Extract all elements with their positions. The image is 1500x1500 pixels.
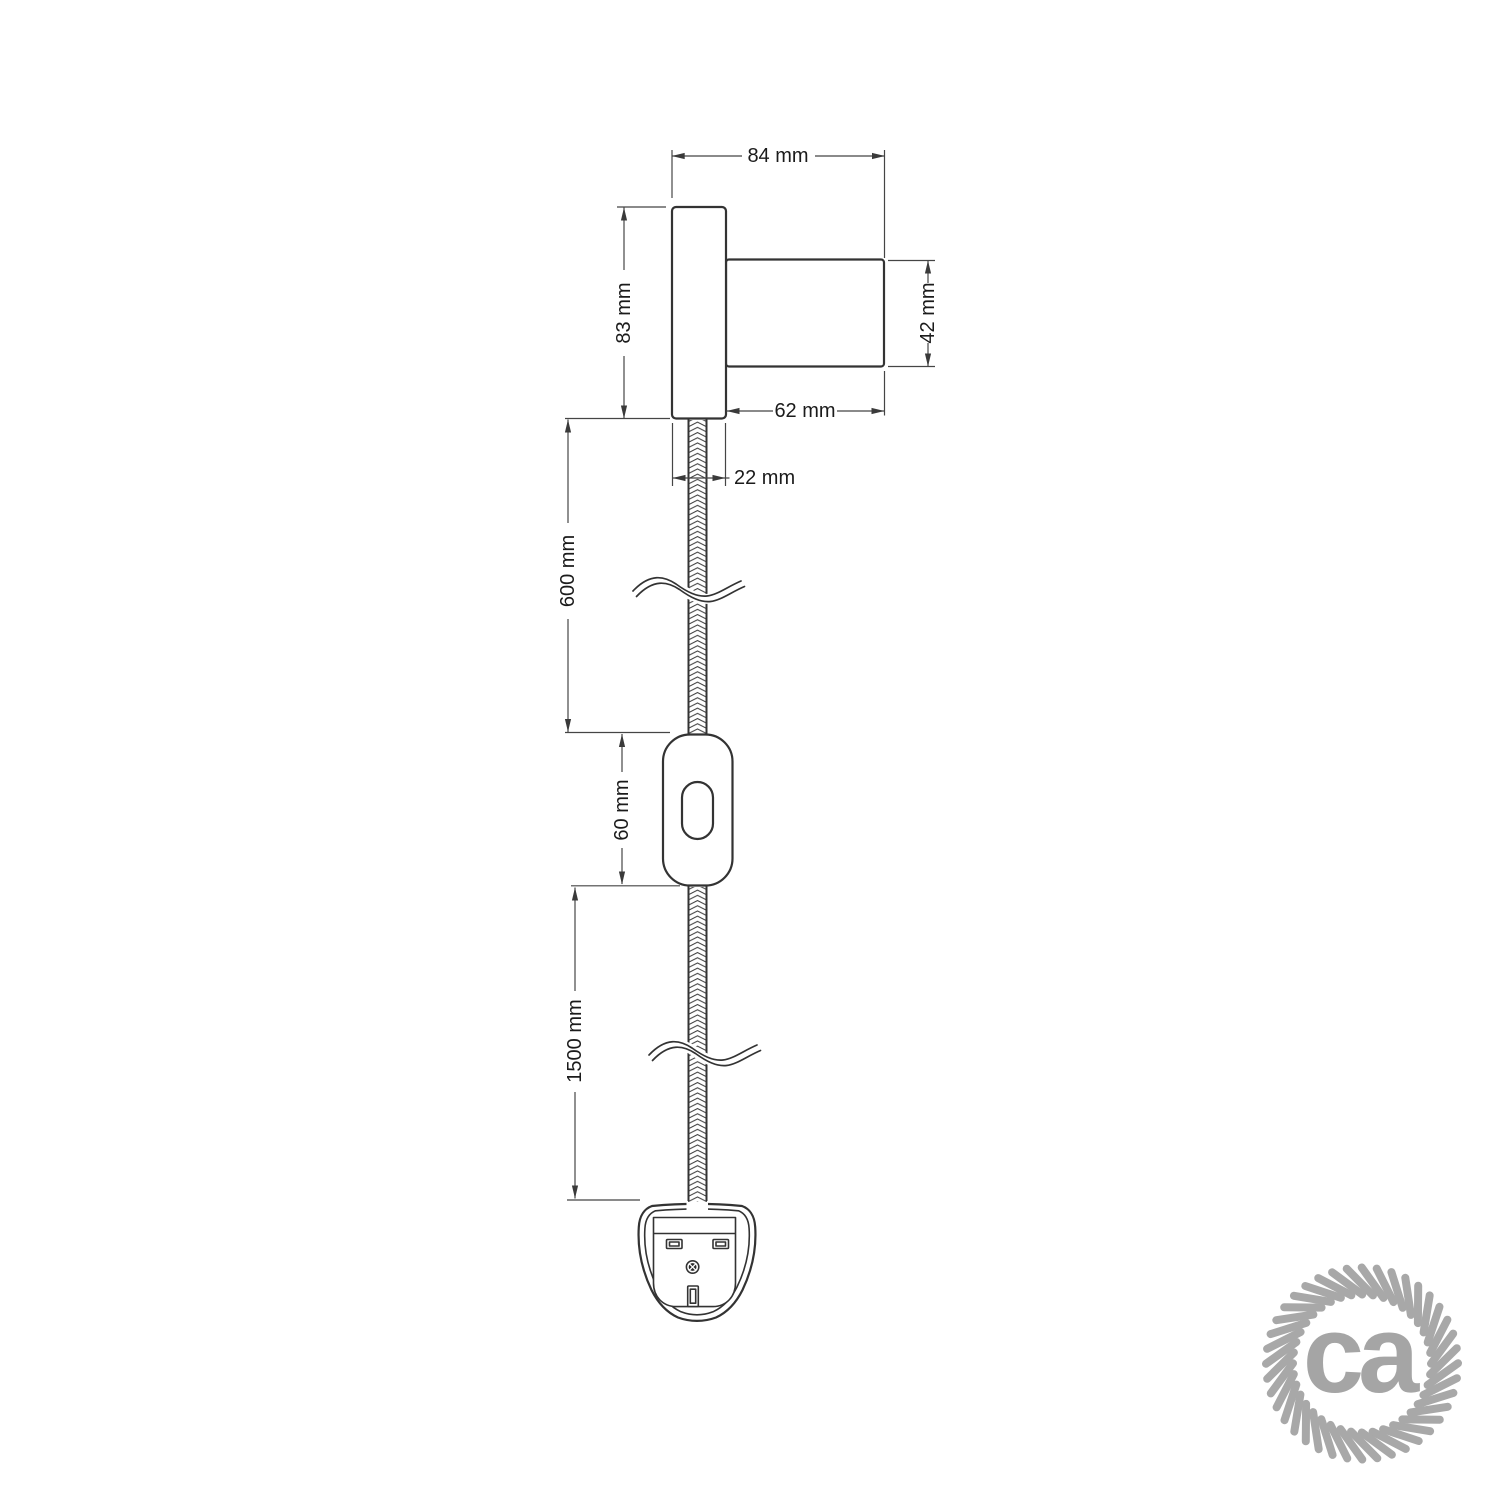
dim-label-lower-cable: 1500 mm xyxy=(564,999,586,1082)
dimension-1500mm: 1500 mm xyxy=(564,888,640,1201)
uk-plug-face xyxy=(654,1218,736,1307)
fabric-cable-lower xyxy=(649,887,761,1203)
dim-label-holder-length: 62 mm xyxy=(774,400,835,422)
dim-label-plate-height: 83 mm xyxy=(613,282,635,343)
mounting-plate-outline xyxy=(672,207,726,419)
logo-text: ca xyxy=(1303,1293,1420,1416)
dim-label-plate-thickness: 22 mm xyxy=(734,467,795,489)
dim-label-switch-length: 60 mm xyxy=(611,779,633,840)
dim-label-upper-cable: 600 mm xyxy=(557,535,579,607)
dimension-62mm: 62 mm xyxy=(727,371,885,422)
dimension-42mm: 42 mm xyxy=(888,261,939,367)
fabric-cable-upper xyxy=(633,420,745,737)
technical-drawing-page: 84 mm 83 mm 42 mm 62 mm 22 mm xyxy=(0,0,1500,1500)
inline-switch xyxy=(663,735,733,886)
dim-label-holder-diameter: 42 mm xyxy=(917,282,939,343)
lamp-holder-outline xyxy=(726,260,884,367)
plug-earth-pin xyxy=(688,1286,699,1307)
lamp-dimension-diagram: 84 mm 83 mm 42 mm 62 mm 22 mm xyxy=(0,0,1500,1500)
dim-label-total-width: 84 mm xyxy=(747,145,808,167)
plug-pin-right xyxy=(713,1240,729,1249)
plug-screw-icon xyxy=(686,1261,698,1273)
switch-rocker xyxy=(682,782,713,839)
dimension-83mm: 83 mm xyxy=(565,207,670,419)
plug-pin-left xyxy=(667,1240,683,1249)
brand-logo: ca xyxy=(1266,1268,1458,1460)
cable-upper-braid xyxy=(688,420,707,736)
dimension-600mm: 600 mm xyxy=(557,420,670,733)
wall-lamp-fixture xyxy=(672,207,884,419)
